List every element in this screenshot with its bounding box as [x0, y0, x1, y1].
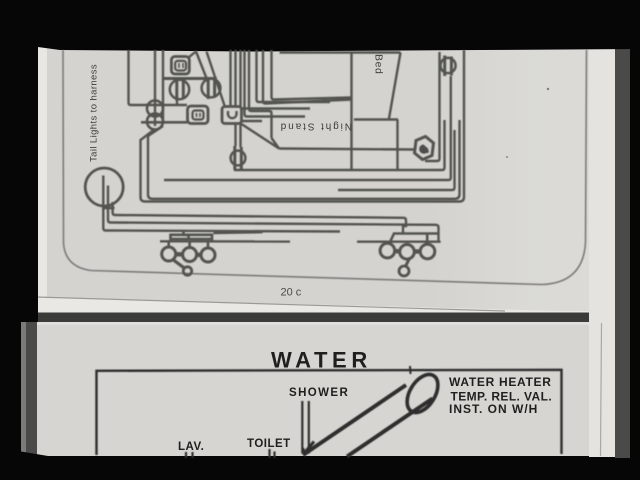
svg-text:Bed: Bed — [373, 54, 385, 74]
svg-text:TOILET: TOILET — [247, 438, 291, 450]
svg-text:20 c: 20 c — [281, 287, 302, 299]
svg-text:WATER HEATER: WATER HEATER — [449, 375, 552, 389]
svg-text:WATER: WATER — [271, 348, 372, 373]
svg-text:Tail Lights to harness: Tail Lights to harness — [89, 64, 100, 162]
svg-text:SHOWER: SHOWER — [289, 387, 349, 399]
svg-text:Night Stand: Night Stand — [279, 121, 352, 132]
svg-text:LAV.: LAV. — [178, 441, 204, 453]
svg-text:INST. ON W/H: INST. ON W/H — [449, 402, 538, 416]
